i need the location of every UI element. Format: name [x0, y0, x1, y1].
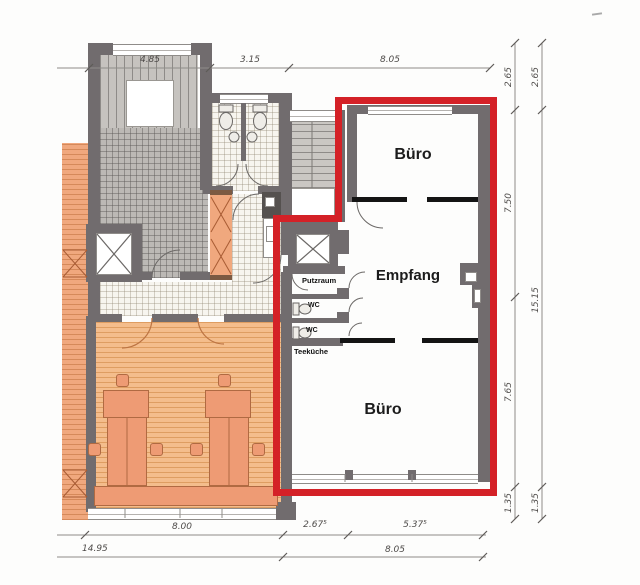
dim-right-outer-1: 2.65 — [531, 57, 541, 97]
red-outline-step — [273, 215, 342, 222]
stair2-landing — [290, 188, 335, 218]
chair-5 — [190, 443, 203, 456]
wc-wc-divider — [283, 318, 340, 323]
empfang-left-stub-3 — [337, 312, 349, 323]
dim-bottom-lower-2: 8.05 — [373, 545, 417, 555]
dim-bottom-upper-2: 2.67⁵ — [293, 520, 337, 530]
chair-4 — [150, 443, 163, 456]
woodroom-top-wall-2 — [152, 314, 198, 322]
chair-2 — [218, 374, 231, 387]
label-wc-upper: WC — [308, 302, 320, 309]
dim-top-3: 8.05 — [368, 55, 412, 65]
buero-bottom-window-mullion-2 — [408, 470, 416, 480]
dim-top-2: 3.15 — [228, 55, 272, 65]
partition1-left — [352, 197, 407, 202]
stair2-left-wall — [283, 110, 290, 222]
dim-right-inner-3: 7.65 — [504, 372, 514, 412]
dim-bottom-upper-3: 5.37⁵ — [393, 520, 437, 530]
red-outline-left-lower — [273, 215, 280, 496]
chair-6 — [252, 443, 265, 456]
partition2-left — [340, 338, 395, 343]
smallrooms-bottom-wall — [283, 338, 343, 346]
lobby-bottom-wall-right — [180, 272, 210, 280]
putzraum-top-wall — [283, 266, 345, 274]
label-teekueche: Teeküche — [294, 347, 328, 356]
woodroom-bottom-corner — [276, 502, 296, 520]
dim-top-1: 4.85 — [128, 55, 172, 65]
buero-top-window — [368, 106, 452, 115]
spine-wall-lower — [281, 272, 292, 520]
left-orange-wall-strip — [62, 143, 88, 520]
red-outline-right — [490, 97, 497, 496]
dim-right-inner-1: 2.65 — [504, 57, 514, 97]
orange-column-strip — [210, 190, 232, 280]
label-wc-lower: WC — [306, 327, 318, 334]
window-counter — [94, 486, 278, 506]
dim-right-inner-4: 1.35 — [504, 483, 514, 523]
woodroom-bottom-window — [88, 508, 278, 520]
label-buero-bottom: Büro — [353, 401, 413, 419]
empfang-left-stub-1 — [337, 230, 349, 254]
putzraum-wc-divider — [283, 294, 340, 299]
chair-1 — [116, 374, 129, 387]
elevator2-cab — [296, 234, 330, 264]
bathroom-stall-partition — [241, 103, 246, 161]
buero-top-left-wall — [347, 110, 357, 202]
scan-artifact — [592, 12, 602, 15]
entry-niche-tag — [474, 289, 481, 303]
dim-bottom-lower-1: 14.95 — [82, 544, 126, 554]
partition2-right — [422, 338, 478, 343]
chair-3 — [88, 443, 101, 456]
kitchenette-sink — [265, 197, 275, 207]
stairwell-top-left-pier — [93, 43, 113, 55]
floor-plan: Büro Empfang Büro Putzraum WC WC Teeküch… — [0, 0, 640, 585]
desk-group-2-top — [205, 390, 251, 418]
corridor-band-tile-floor — [100, 282, 281, 316]
elevator1-cab — [96, 233, 132, 275]
red-outline-top — [335, 97, 497, 104]
buero-bottom-window-mullion-1 — [345, 470, 353, 480]
desk-group-1-top — [103, 390, 149, 418]
label-putzraum: Putzraum — [302, 276, 336, 285]
dim-bottom-upper-1: 8.00 — [160, 522, 204, 532]
entry-niche-window — [465, 272, 477, 282]
desk-group-1-body — [107, 417, 147, 486]
wood-room-left-wall — [86, 316, 96, 512]
dim-right-inner-2: 7.50 — [504, 183, 514, 223]
empfang-left-stub-2 — [337, 288, 349, 299]
red-outline-bottom — [273, 489, 497, 496]
dim-right-outer-2: 15.15 — [531, 280, 541, 320]
partition1-right — [427, 197, 478, 202]
stairwell-right-wall — [200, 43, 212, 190]
woodroom-top-wall-1 — [94, 314, 122, 322]
dim-right-outer-3: 1.35 — [531, 483, 541, 523]
stairwell-landing — [126, 80, 174, 127]
red-outline-left-upper — [335, 97, 342, 222]
label-buero-top: Büro — [383, 146, 443, 164]
desk-group-2-body — [209, 417, 249, 486]
label-empfang: Empfang — [363, 267, 453, 284]
buero-bottom-window — [292, 474, 478, 484]
stair2-top-window — [283, 110, 343, 122]
stair2-treads — [290, 122, 335, 188]
